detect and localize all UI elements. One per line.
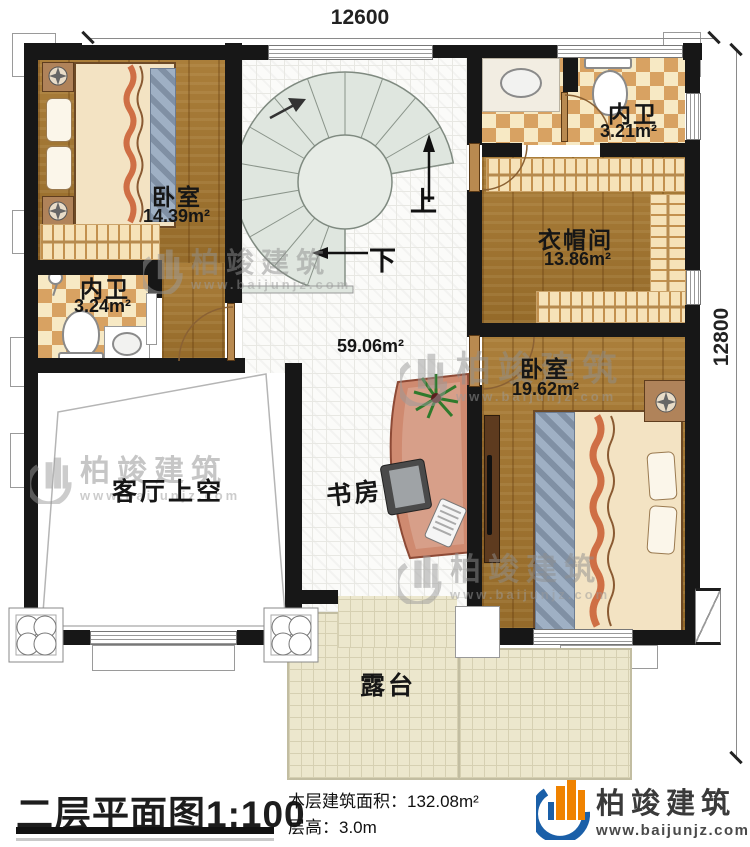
spiral-staircase — [230, 56, 462, 298]
pillow — [646, 505, 677, 555]
stair-up-label: 上 — [410, 180, 437, 219]
tv — [487, 455, 492, 535]
living-void-label: 客厅上空 — [112, 472, 224, 508]
wardrobe-rack — [486, 158, 685, 192]
terrace-doorway-floor — [338, 596, 457, 648]
door-leaf — [146, 293, 157, 345]
bed-throw — [535, 412, 575, 631]
wall — [24, 58, 38, 633]
cloakroom-area: 13.86m² — [544, 249, 611, 270]
brand-name: 柏竣建筑 — [596, 780, 749, 822]
sink-basin — [112, 332, 142, 356]
wall — [24, 358, 245, 373]
wardrobe-rack — [40, 224, 160, 260]
sink-basin — [500, 68, 542, 98]
door-leaf — [561, 92, 568, 142]
floor-area-line: 本层建筑面积：132.08m² — [288, 789, 479, 815]
pillow — [46, 146, 72, 190]
dimension-line-top — [88, 38, 714, 39]
wall — [433, 45, 557, 58]
wall — [633, 630, 700, 645]
wall — [298, 590, 338, 604]
floor-plan: 上 下 12600 12800 卧室 14.39m² 内卫 3.24m² 内卫 … — [0, 0, 750, 847]
floor-height-label: 层高： — [288, 818, 339, 837]
bedroom2-area: 19.62m² — [512, 379, 579, 400]
wall — [685, 140, 700, 270]
pillow — [46, 98, 72, 142]
bed-quilt-stripe — [575, 410, 645, 634]
toilet-tank — [584, 57, 632, 69]
window — [686, 93, 701, 140]
stair-down-label: 下 — [369, 239, 396, 278]
window — [557, 45, 683, 58]
wall — [600, 143, 685, 157]
hall-area: 59.06m² — [337, 336, 404, 357]
floor-height-value: 3.0m — [339, 818, 377, 837]
title-underline-light — [16, 838, 274, 841]
terrace-step — [455, 606, 500, 658]
wall — [482, 143, 522, 157]
brand-url: www.baijunjz.com — [596, 822, 749, 839]
window — [533, 629, 633, 645]
compass-ornament-icon — [46, 64, 70, 88]
wardrobe-rack — [536, 291, 686, 323]
window — [686, 270, 701, 305]
brand-logo-block: 柏竣建筑 www.baijunjz.com — [536, 778, 749, 840]
corner-bay-window — [695, 588, 721, 645]
study-label: 书房 — [324, 471, 383, 513]
pillow — [646, 451, 677, 501]
column-symbol — [263, 607, 319, 663]
wardrobe-rack — [650, 194, 686, 294]
floor-area-value: 132.08m² — [407, 792, 479, 811]
terrace-floor-right — [458, 648, 632, 780]
study-desk — [378, 372, 478, 562]
computer-monitor — [380, 459, 432, 516]
toilet — [62, 310, 100, 358]
floor-height-line: 层高：3.0m — [288, 815, 479, 841]
column-symbol — [8, 607, 64, 663]
floor-area-label: 本层建筑面积： — [288, 792, 407, 811]
window — [268, 45, 433, 60]
bath-top-area: 3.21m² — [600, 121, 657, 142]
bedroom1-area: 14.39m² — [143, 206, 210, 227]
dimension-line-right — [736, 50, 737, 760]
title-underline — [16, 827, 274, 834]
door-leaf — [469, 335, 480, 387]
wall — [467, 190, 482, 337]
wall — [685, 58, 700, 93]
compass-ornament-icon — [46, 199, 70, 223]
door-leaf — [227, 303, 235, 361]
floor-stats: 本层建筑面积：132.08m² 层高：3.0m — [288, 789, 479, 842]
compass-ornament-icon — [653, 389, 679, 415]
dimension-top: 12600 — [300, 6, 420, 30]
wall — [467, 323, 685, 337]
terrace-label: 露台 — [360, 666, 416, 702]
brand-logo-icon — [536, 778, 590, 840]
wall — [467, 58, 482, 145]
door-leaf — [469, 143, 480, 192]
wall — [225, 43, 242, 303]
bath-left-area: 3.24m² — [74, 296, 131, 317]
window-sill — [92, 645, 235, 671]
dimension-right: 12800 — [710, 295, 734, 379]
wall — [563, 58, 578, 92]
wall — [467, 385, 482, 628]
corridor-floor — [162, 263, 225, 360]
bed-quilt-stripe — [112, 62, 148, 228]
window — [90, 631, 237, 645]
